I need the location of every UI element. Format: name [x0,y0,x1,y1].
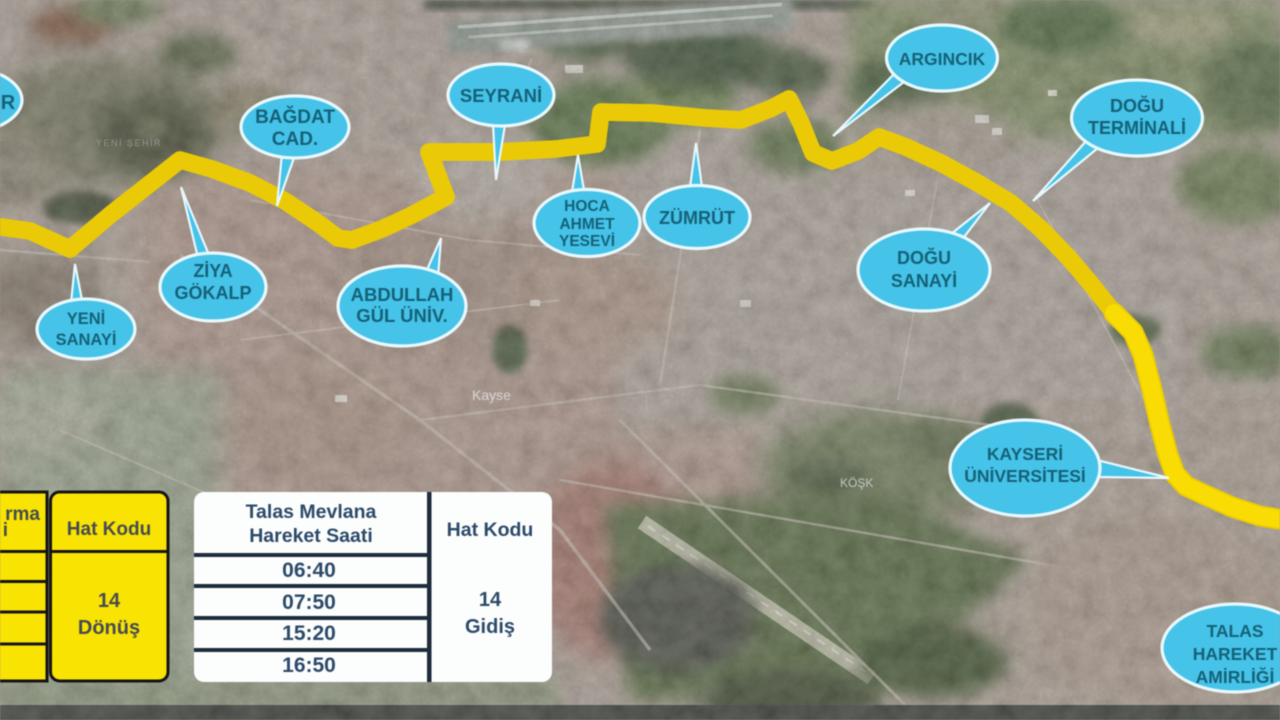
svg-text:Hat Kodu: Hat Kodu [447,519,534,541]
svg-text:15:20: 15:20 [282,622,336,645]
svg-text:06:40: 06:40 [282,559,336,582]
svg-text:TALAS: TALAS [1206,621,1263,641]
svg-text:SANAYİ: SANAYİ [56,331,117,349]
svg-text:ABDULLAH: ABDULLAH [351,284,454,305]
svg-text:KAYSERİ: KAYSERİ [987,444,1063,464]
svg-text:DOĞU: DOĞU [897,247,951,268]
svg-text:YENİ: YENİ [67,310,106,328]
svg-text:AMİRLİĞİ: AMİRLİĞİ [1196,666,1275,687]
svg-text:GÖKALP: GÖKALP [174,283,251,303]
svg-text:CAD.: CAD. [272,129,318,150]
svg-text:ÜNİVERSİTESİ: ÜNİVERSİTESİ [964,466,1086,486]
svg-text:rma: rma [5,504,40,525]
svg-text:Gidiş: Gidiş [465,616,515,638]
svg-text:HOCA: HOCA [564,198,610,215]
svg-text:Dönüş: Dönüş [78,617,140,639]
svg-text:16:50: 16:50 [282,654,336,677]
svg-text:07:50: 07:50 [282,591,336,614]
svg-text:R: R [1,92,16,114]
svg-text:14: 14 [479,589,502,611]
svg-text:14: 14 [98,590,121,612]
svg-text:DOĞU: DOĞU [1110,95,1164,116]
svg-text:SEYRANİ: SEYRANİ [460,85,542,106]
svg-text:ZÜMRÜT: ZÜMRÜT [659,208,735,228]
svg-text:GÜL ÜNİV.: GÜL ÜNİV. [356,305,448,326]
svg-text:TERMİNALİ: TERMİNALİ [1088,118,1186,138]
svg-text:Hat Kodu: Hat Kodu [67,519,151,540]
svg-text:Hareket Saati: Hareket Saati [249,525,373,547]
svg-text:Talas Mevlana: Talas Mevlana [246,501,377,523]
svg-text:SANAYİ: SANAYİ [891,271,957,291]
svg-text:YESEVİ: YESEVİ [559,233,615,250]
svg-text:ARGINCIK: ARGINCIK [899,49,986,69]
svg-text:i: i [3,520,8,541]
svg-text:AHMET: AHMET [559,216,615,233]
svg-text:ZİYA: ZİYA [193,261,232,281]
svg-text:HAREKET: HAREKET [1193,644,1278,664]
svg-text:BAĞDAT: BAĞDAT [255,106,335,128]
